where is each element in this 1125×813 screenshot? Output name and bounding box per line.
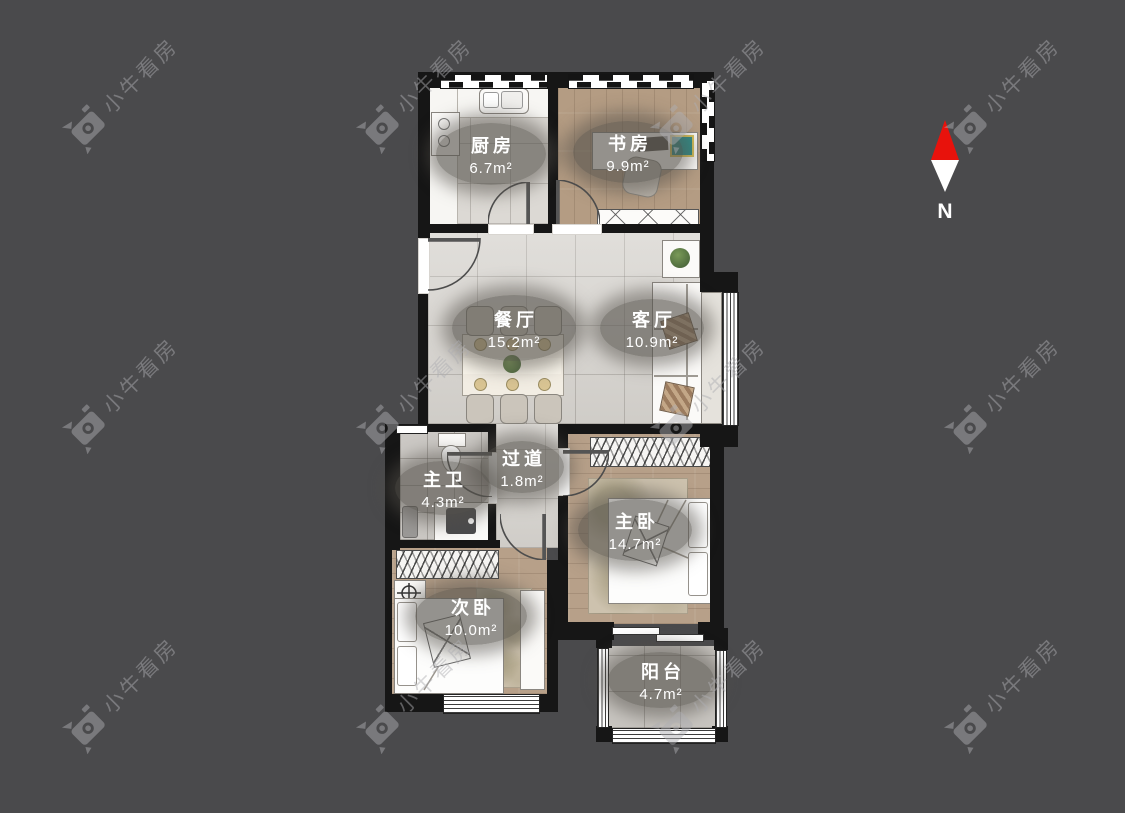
kitchen-door (488, 182, 530, 224)
watermark-text: 小牛看房 (95, 631, 184, 720)
sofa-pillow (659, 381, 695, 417)
wall-segment (538, 694, 558, 712)
living-bay-window (722, 292, 739, 426)
watermark-text: 小牛看房 (977, 631, 1066, 720)
wall-segment (710, 447, 724, 628)
sofa-cushion-line (654, 375, 698, 377)
compass: N (918, 120, 972, 224)
place-setting (474, 378, 487, 391)
wall-segment (596, 726, 612, 742)
watermark-logo-icon (943, 701, 997, 755)
compass-south-needle-icon (931, 160, 959, 192)
watermark: 小牛看房 (61, 328, 188, 455)
watermark: 小牛看房 (943, 328, 1070, 455)
room-label-balcony: 阳台4.7m² (608, 652, 714, 708)
second-wardrobe (396, 550, 499, 579)
wall-segment (385, 548, 392, 712)
wall-segment (385, 694, 443, 712)
study-window (568, 74, 694, 89)
room-label-living: 客厅10.9m² (600, 299, 704, 357)
watermark-logo-icon (355, 101, 409, 155)
shower-fixture (402, 506, 418, 538)
wall-segment (418, 88, 430, 240)
bay-window-sill (700, 292, 722, 424)
watermark-text: 小牛看房 (95, 331, 184, 420)
balcony-window-left (597, 648, 609, 728)
watermark-logo-icon (943, 401, 997, 455)
place-setting (506, 378, 519, 391)
place-setting (538, 378, 551, 391)
second-bedroom-door (500, 514, 546, 560)
room-label-master-bath: 主卫4.3m² (395, 461, 491, 515)
kitchen-sink-basin-right (501, 91, 523, 109)
master-bedroom-door (563, 450, 609, 496)
watermark: 小牛看房 (943, 628, 1070, 755)
second-desk (520, 590, 545, 690)
room-label-hallway: 过道1.8m² (480, 441, 564, 493)
plant-icon (670, 248, 690, 268)
kitchen-window (440, 74, 548, 89)
watermark-logo-icon (61, 701, 115, 755)
dining-chair (466, 394, 494, 424)
balcony-window-right (715, 650, 727, 728)
kitchen-door-opening (488, 224, 534, 235)
room-label-master-bedroom: 主卧14.7m² (578, 499, 692, 561)
second-bedroom-window (443, 694, 540, 714)
wall-segment (596, 628, 612, 648)
watermark-logo-icon (61, 401, 115, 455)
room-label-dining: 餐厅15.2m² (452, 295, 576, 361)
room-label-kitchen: 厨房6.7m² (436, 123, 546, 185)
wall-segment (714, 628, 728, 650)
wall-segment (558, 424, 714, 434)
balcony-sliding-door (612, 627, 660, 635)
balcony-sliding-door (656, 634, 704, 642)
compass-north-needle-icon (931, 120, 959, 160)
wall-segment (700, 272, 738, 292)
study-side-window (701, 80, 715, 162)
dining-chair (534, 394, 562, 424)
watermark: 小牛看房 (61, 628, 188, 755)
bathroom-window (396, 425, 428, 434)
compass-north-label: N (937, 200, 952, 224)
wall-segment (385, 540, 500, 548)
balcony-window-bottom (612, 728, 716, 744)
vanity-faucet (468, 518, 474, 524)
watermark-text: 小牛看房 (95, 31, 184, 120)
kitchen-sink-basin-left (483, 92, 499, 108)
room-label-study: 书房9.9m² (573, 121, 683, 183)
stove-burner-1 (438, 118, 450, 130)
study-door-opening (552, 224, 602, 235)
entry-door (428, 238, 482, 292)
watermark: 小牛看房 (61, 28, 188, 155)
study-door (556, 180, 600, 224)
floorplan-canvas: 厨房6.7m² 书房9.9m² 餐厅15.2m² 客厅10.9m² 主卫4.3m… (0, 0, 1125, 813)
watermark-text: 小牛看房 (977, 331, 1066, 420)
watermark-logo-icon (61, 101, 115, 155)
room-label-second-bedroom: 次卧10.0m² (415, 587, 527, 645)
watermark-text: 小牛看房 (977, 31, 1066, 120)
dining-chair (500, 394, 528, 424)
